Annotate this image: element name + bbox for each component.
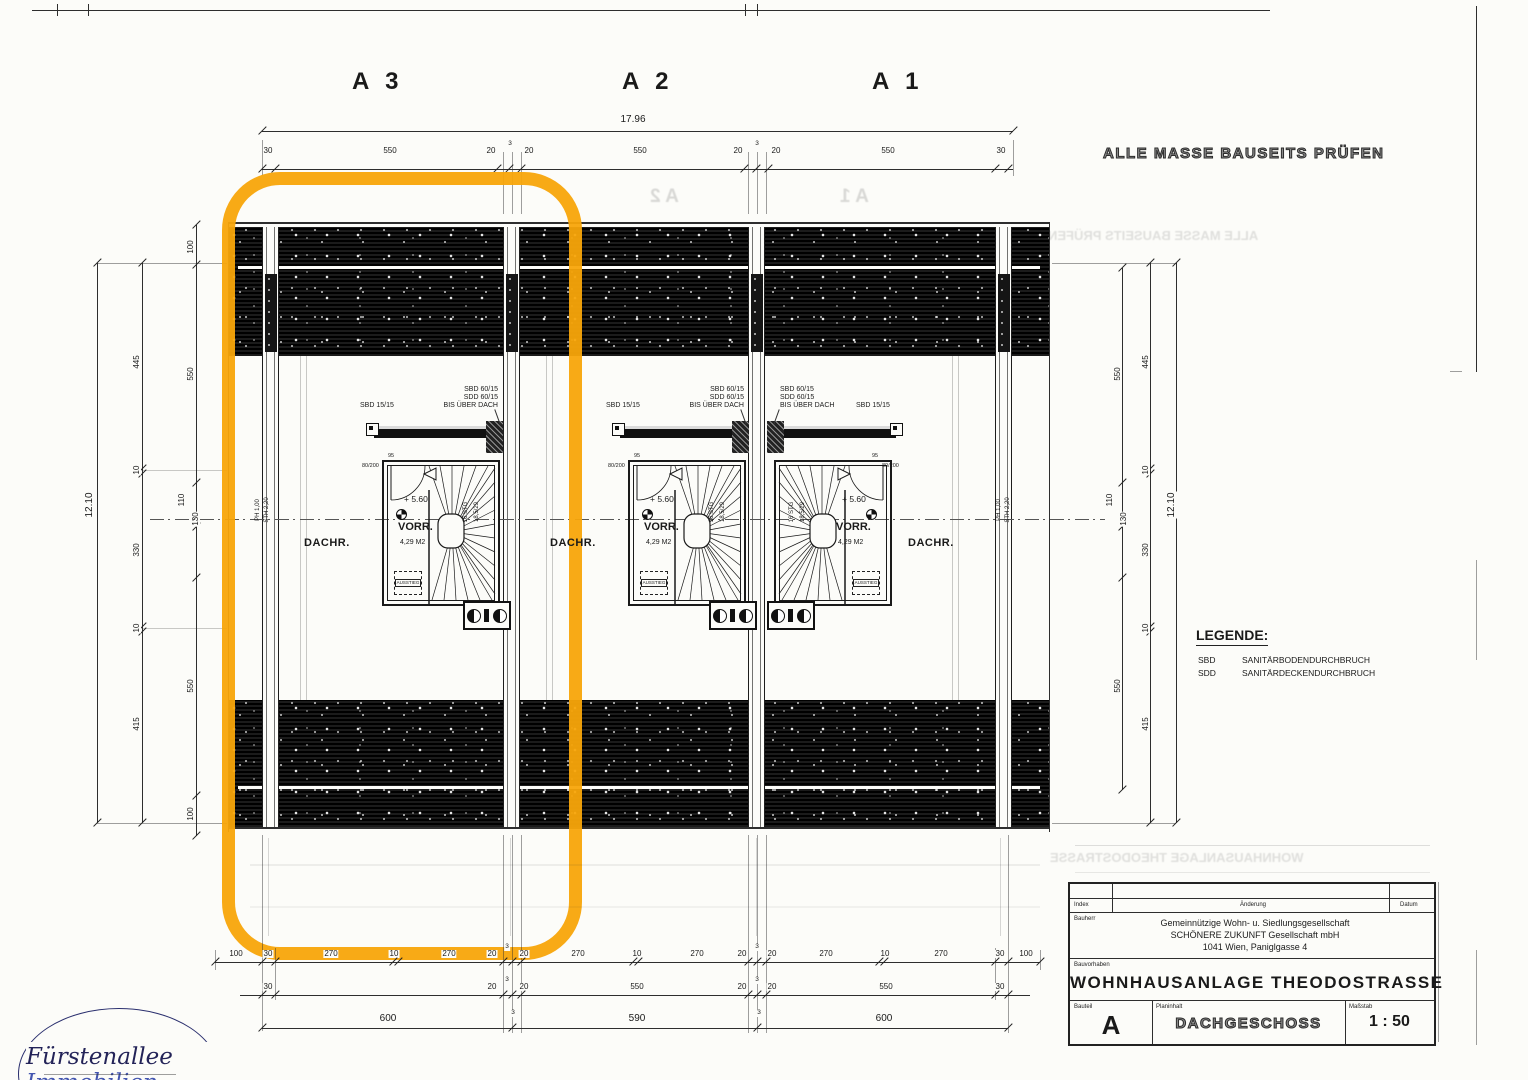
- dim-label: 30: [263, 147, 274, 155]
- skylight-box: [463, 601, 511, 630]
- parapet-note: PH 1,00: [996, 498, 1002, 522]
- duct-line: SDD 60/15: [666, 394, 744, 402]
- ausstieg-label: AUSSTIEG: [853, 579, 880, 588]
- bauherr-label: Bauherr: [1074, 916, 1095, 922]
- check-dimensions-note: ALLE MASSE BAUSEITS PRÜFEN: [1103, 146, 1385, 161]
- dim-label: 550: [632, 147, 647, 155]
- dim-label: 550: [187, 366, 195, 381]
- door-width: 95: [872, 454, 878, 460]
- parapet-note: STH 2,20: [1005, 496, 1011, 523]
- dim-label: 550: [1114, 678, 1122, 693]
- skylight-dome: [493, 609, 507, 623]
- ausstieg-hatch: AUSSTIEG: [394, 571, 422, 595]
- bleedthrough-a1: A 1: [840, 186, 869, 208]
- skylight-dome: [797, 609, 811, 623]
- trim-tick: [757, 4, 758, 16]
- bauherr-line: Gemeinnützige Wohn- u. Siedlungsgesellsc…: [1130, 919, 1380, 928]
- legend-abbr: SDD: [1198, 669, 1216, 678]
- room-area: 4,29 M2: [400, 539, 425, 546]
- dim-label: 20: [737, 950, 748, 958]
- trim-tick: [57, 4, 58, 16]
- dim-label: 130: [1120, 511, 1128, 526]
- dim-line: [262, 1028, 1008, 1029]
- dim-label: 20: [771, 147, 782, 155]
- legend-title: LEGENDE:: [1196, 627, 1268, 646]
- dim-label: 10: [389, 950, 400, 958]
- stair-note: 18,5/29: [800, 501, 806, 523]
- dim-label: 415: [1142, 716, 1150, 731]
- vent-duct: [620, 426, 744, 438]
- project-title: WOHNHAUSANLAGE THEODOSTRASSE: [1070, 974, 1434, 991]
- vent-duct: [374, 426, 498, 438]
- skylight-box: [709, 601, 757, 630]
- dim-label: 270: [441, 950, 456, 958]
- bleedthrough-note: ALLE MASSE BAUSEITS PRÜFEN: [1048, 228, 1258, 243]
- dim-label: 12.10: [85, 491, 95, 518]
- dim-label: 445: [133, 354, 141, 369]
- sbd-marker: [612, 423, 625, 436]
- dim-label: 3: [507, 141, 513, 148]
- logo-underline: [44, 1074, 176, 1075]
- room-label: VORR.: [836, 522, 871, 533]
- dim-label: 550: [187, 678, 195, 693]
- dim-label: 20: [737, 983, 748, 991]
- door-size: 80/200: [608, 464, 625, 470]
- ausstieg-label: AUSSTIEG: [641, 579, 668, 588]
- dim-label: 445: [1142, 354, 1150, 369]
- dim-label: 3: [754, 944, 760, 951]
- logo: Fürstenallee Immobilien: [16, 1004, 226, 1080]
- skylight-dome: [467, 609, 481, 623]
- ausstieg-hatch: AUSSTIEG: [640, 571, 668, 595]
- bauherr-line: SCHÖNERE ZUKUNFT Gesellschaft mbH: [1130, 931, 1380, 940]
- door-size: 80/200: [362, 464, 379, 470]
- dim-label: 10: [1142, 623, 1150, 634]
- stair-note: 18,5/29: [474, 501, 480, 523]
- legend-text: SANITÄRBODENDURCHBRUCH: [1242, 656, 1370, 665]
- dim-label: 3: [510, 1010, 516, 1017]
- dim-label: 110: [1106, 493, 1114, 508]
- ausstieg-hatch: AUSSTIEG: [852, 571, 880, 595]
- door-width: 95: [388, 454, 394, 460]
- dim-label: 550: [382, 147, 397, 155]
- skylight-divider: [484, 609, 489, 622]
- bauvorhaben-label: Bauvorhaben: [1074, 962, 1110, 968]
- dim-label: 270: [323, 950, 338, 958]
- dim-line: [262, 169, 1013, 170]
- dim-label: 20: [767, 983, 778, 991]
- title-block: Index Änderung Datum Bauherr Gemeinnützi…: [1068, 882, 1436, 1046]
- ausstieg-label: AUSSTIEG: [395, 579, 422, 588]
- stair-note: 16 STG: [463, 501, 469, 524]
- dim-label: 17.96: [619, 115, 646, 125]
- massstab-label: Maßstab: [1349, 1004, 1372, 1010]
- trim-line-right: [1476, 950, 1477, 1045]
- dim-label: 30: [263, 983, 274, 991]
- vent-duct: [772, 426, 896, 438]
- dim-label: 12.10: [1167, 491, 1177, 518]
- dim-label: 20: [733, 147, 744, 155]
- datum-label: Datum: [1400, 902, 1418, 908]
- level-label: + 5.60: [404, 495, 428, 504]
- dachraum-label: DACHR.: [550, 538, 596, 549]
- door-width: 95: [634, 454, 640, 460]
- sbd-label: SBD 15/15: [606, 402, 640, 409]
- sbd-label: SBD 15/15: [360, 402, 394, 409]
- door-size: 80/200: [882, 464, 899, 470]
- unit-heading-a1: A 1: [872, 70, 923, 94]
- sbd-label: SBD 15/15: [856, 402, 890, 409]
- skylight-dome: [713, 609, 727, 623]
- dim-label: 30: [995, 983, 1006, 991]
- dim-label: 110: [178, 493, 186, 508]
- dim-label: 10: [880, 950, 891, 958]
- dim-label: 550: [1114, 366, 1122, 381]
- dim-label: 270: [933, 950, 948, 958]
- dim-label: 20: [524, 147, 535, 155]
- dim-label: 270: [570, 950, 585, 958]
- dim-label: 10: [133, 623, 141, 634]
- dim-label: 20: [486, 147, 497, 155]
- dim-label: 100: [187, 239, 195, 254]
- aenderung-label: Änderung: [1240, 902, 1266, 908]
- trim-tick: [88, 4, 89, 16]
- dim-label: 20: [487, 950, 498, 958]
- dim-line: [240, 995, 1030, 996]
- dim-label: 3: [754, 977, 760, 984]
- logo-name-1: Fürstenallee: [26, 1044, 173, 1070]
- duct-line: BIS ÜBER DACH: [780, 402, 858, 410]
- planinhalt-value: DACHGESCHOSS: [1152, 1016, 1345, 1031]
- room-area: 4,29 M2: [646, 539, 671, 546]
- chimney-block: [767, 421, 784, 453]
- trim-line-right: [1476, 560, 1477, 660]
- sbd-marker: [366, 423, 379, 436]
- bleedthrough-a2: A 2: [650, 186, 679, 208]
- bauteil-label: Bauteil: [1074, 1004, 1092, 1010]
- level-label: + 5.60: [650, 495, 674, 504]
- sbd-marker: [890, 423, 903, 436]
- skylight-box: [767, 601, 815, 630]
- dim-label: 30: [996, 147, 1007, 155]
- parapet-note: STH 2,20: [264, 496, 270, 523]
- dim-label: 30: [263, 950, 274, 958]
- dim-label: 30: [995, 950, 1006, 958]
- dim-label: 415: [133, 716, 141, 731]
- trim-mark: [1450, 371, 1462, 372]
- dim-label: 10: [133, 465, 141, 476]
- dachraum-label: DACHR.: [304, 538, 350, 549]
- duct-line: SDD 60/15: [420, 394, 498, 402]
- dim-label: 100: [1018, 950, 1033, 958]
- dim-label: 330: [133, 542, 141, 557]
- stair-note: 16 STG: [709, 501, 715, 524]
- planinhalt-label: Planinhalt: [1156, 1004, 1182, 1010]
- floorplan-scan: A 3 A 2 A 1 A 2 A 1 ALLE MASSE BAUSEITS …: [0, 0, 1528, 1080]
- dim-label: 600: [875, 1014, 894, 1024]
- dim-label: 550: [878, 983, 893, 991]
- index-label: Index: [1074, 902, 1089, 908]
- dim-label: 3: [756, 1010, 762, 1017]
- logo-name-2: Immobilien: [26, 1070, 158, 1080]
- level-symbol: [396, 509, 407, 520]
- dim-label: 330: [1142, 542, 1150, 557]
- room-area: 4,29 M2: [838, 539, 863, 546]
- trim-line-right: [1476, 6, 1477, 372]
- duct-labels: SBD 60/15 SDD 60/15 BIS ÜBER DACH: [780, 386, 858, 410]
- skylight-dome: [771, 609, 785, 623]
- dim-label: 20: [487, 983, 498, 991]
- duct-line: SBD 60/15: [420, 386, 498, 394]
- bauherr-line: 1041 Wien, Paniglgasse 4: [1130, 943, 1380, 952]
- duct-line: BIS ÜBER DACH: [666, 402, 744, 410]
- chimney-block: [486, 421, 503, 453]
- stair-note: 18,5/29: [720, 501, 726, 523]
- trim-tick: [745, 4, 746, 16]
- dim-label: 550: [880, 147, 895, 155]
- duct-labels: SBD 60/15 SDD 60/15 BIS ÜBER DACH: [666, 386, 744, 410]
- chimney-block: [732, 421, 749, 453]
- dim-label: 550: [629, 983, 644, 991]
- skylight-divider: [730, 609, 735, 622]
- dim-line: [215, 962, 1040, 963]
- unit-heading-a3: A 3: [352, 70, 403, 94]
- dim-label: 100: [187, 806, 195, 821]
- legend: LEGENDE:: [1196, 628, 1268, 644]
- legend-text: SANITÄRDECKENDURCHBRUCH: [1242, 669, 1375, 678]
- stair-note: 16 STG: [789, 501, 795, 524]
- parapet-note: PH 1,00: [255, 498, 261, 522]
- bleedthrough-title: WOHNHAUSANLAGE THEODOSTRASSE: [1050, 850, 1304, 865]
- dim-label: 600: [379, 1014, 398, 1024]
- duct-line: BIS ÜBER DACH: [420, 402, 498, 410]
- dachraum-label: DACHR.: [908, 538, 954, 549]
- massstab-value: 1 : 50: [1345, 1014, 1434, 1030]
- room-label: VORR.: [644, 522, 679, 533]
- unit-heading-a2: A 2: [622, 70, 673, 94]
- bauteil-value: A: [1070, 1012, 1152, 1038]
- dim-line: [262, 131, 1013, 132]
- duct-labels: SBD 60/15 SDD 60/15 BIS ÜBER DACH: [420, 386, 498, 410]
- dim-label: 3: [504, 977, 510, 984]
- dim-label: 3: [754, 141, 760, 148]
- dim-label: 270: [689, 950, 704, 958]
- dim-label: 270: [818, 950, 833, 958]
- dim-label: 3: [504, 944, 510, 951]
- level-symbol: [642, 509, 653, 520]
- dim-label: 20: [767, 950, 778, 958]
- duct-line: SBD 60/15: [780, 386, 858, 394]
- duct-line: SDD 60/15: [780, 394, 858, 402]
- level-symbol: [866, 509, 877, 520]
- duct-line: SBD 60/15: [666, 386, 744, 394]
- skylight-divider: [788, 609, 793, 622]
- dim-label: 100: [228, 950, 243, 958]
- level-label: + 5.60: [842, 495, 866, 504]
- legend-abbr: SBD: [1198, 656, 1215, 665]
- dim-label: 10: [1142, 465, 1150, 476]
- dim-label: 590: [628, 1014, 647, 1024]
- room-label: VORR.: [398, 522, 433, 533]
- skylight-dome: [739, 609, 753, 623]
- trim-line-top: [32, 10, 1270, 11]
